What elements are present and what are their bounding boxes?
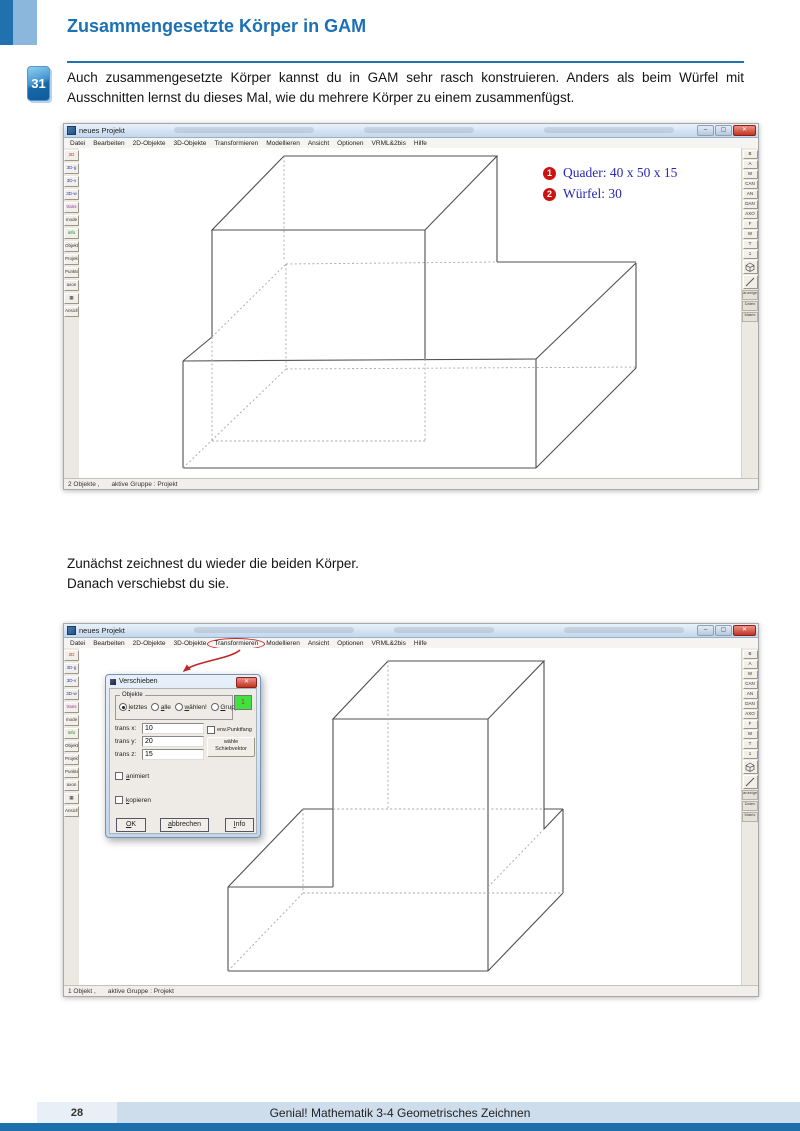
annotation-quader: 1 Quader: 40 x 50 x 15 (543, 165, 677, 181)
radio-option[interactable]: letztes (119, 703, 147, 711)
number-badge-1: 1 (543, 167, 556, 180)
toolbar-button[interactable]: trans (64, 702, 79, 713)
annotation-text: Quader: 40 x 50 x 15 (563, 165, 677, 181)
maximize-button[interactable]: ▢ (715, 125, 732, 136)
toolbar-button[interactable]: Objekt (64, 241, 79, 252)
right-toolbar-chips: anzeigenDatenMatrix (742, 290, 758, 322)
menu-item[interactable]: VRML&2bis (368, 640, 410, 647)
footer-dark-strip (0, 1123, 800, 1131)
schiebvektor-button[interactable]: wähle Schiebvektor (207, 737, 255, 757)
trans-z-label: trans z: (115, 751, 139, 758)
trans-y-label: trans y: (115, 738, 139, 745)
toolbar-chip[interactable]: Daten (742, 801, 758, 811)
trans-x-label: trans x: (115, 725, 139, 732)
window-title: neues Projekt (79, 126, 125, 135)
object-radio-group: letztes alle wählen! Gruppe (119, 703, 242, 711)
titlebar-artifact (194, 627, 354, 633)
toolbar-button[interactable]: info (64, 728, 79, 739)
radio-option[interactable]: alle (151, 703, 171, 711)
toolbar-button[interactable]: AXO (743, 710, 758, 719)
toolbar-button[interactable]: W (743, 170, 758, 179)
number-badge-2: 2 (543, 188, 556, 201)
trans-z-input[interactable] (142, 749, 204, 760)
app-icon (67, 626, 76, 635)
menu-item[interactable]: VRML&2bis (368, 140, 410, 147)
ok-button[interactable]: OK (116, 818, 146, 832)
group-count-field[interactable]: 1 (234, 695, 252, 710)
toolbar-button[interactable]: 3D-v (64, 676, 79, 687)
toolbar-chip[interactable]: Matrix (742, 312, 758, 322)
corner-decoration-dark (0, 0, 13, 45)
cube-view-icon[interactable] (743, 760, 758, 774)
book-page: Zusammengesetzte Körper in GAM 31 Auch z… (0, 0, 800, 1131)
toolbar-button[interactable]: CAN (743, 680, 758, 689)
toolbar-button[interactable]: DAN (743, 200, 758, 209)
status-group: aktive Gruppe : Projekt (108, 988, 174, 995)
menu-item[interactable]: Datei (66, 140, 89, 147)
toolbar-chip[interactable]: anzeigen (742, 290, 758, 300)
app-icon (67, 126, 76, 135)
animiert-checkbox[interactable]: animiert (115, 772, 149, 780)
menu-item[interactable]: 2D-Objekte (129, 140, 170, 147)
toolbar-button[interactable]: AN (743, 690, 758, 699)
radio-option[interactable]: wählen! (175, 703, 207, 711)
menu-item[interactable]: Transformieren (210, 640, 262, 647)
menu-item[interactable]: Modellieren (262, 140, 304, 147)
annotation-wuerfel: 2 Würfel: 30 (543, 186, 622, 202)
menu-item[interactable]: 2D-Objekte (129, 640, 170, 647)
toolbar-button[interactable]: ▦ (64, 793, 79, 804)
status-objects: 2 Objekte , (68, 481, 99, 488)
minimize-button[interactable]: – (697, 125, 714, 136)
instruction-line-2: Danach verschiebst du sie. (67, 576, 229, 591)
menu-item[interactable]: Transformieren (210, 140, 262, 147)
header-rule (67, 61, 744, 63)
menu-item[interactable]: Hilfe (410, 640, 431, 647)
checkbox-icon (115, 772, 123, 780)
menu-item[interactable]: Optionen (333, 640, 367, 647)
window-titlebar: neues Projekt – ▢ ✕ (64, 624, 758, 638)
kopieren-checkbox[interactable]: kopieren (115, 796, 151, 804)
menu-item[interactable]: Ansicht (304, 640, 333, 647)
toolbar-button[interactable]: ▦ (64, 293, 79, 304)
toolbar-button[interactable]: B (743, 150, 758, 159)
gam-window-1: neues Projekt – ▢ ✕ DateiBearbeiten2D-Ob… (63, 123, 759, 490)
radio-icon (175, 703, 183, 711)
objekte-groupbox: Objekte letztes alle wählen! (115, 695, 233, 720)
dialog-title: Verschieben (119, 678, 158, 685)
toolbar-button[interactable]: Projekt (64, 254, 79, 265)
menu-item[interactable]: Bearbeiten (89, 640, 128, 647)
toolbar-chip[interactable]: Daten (742, 301, 758, 311)
toolbar-button[interactable]: mode (64, 215, 79, 226)
menu-item[interactable]: Optionen (333, 140, 367, 147)
menu-item[interactable]: Bearbeiten (89, 140, 128, 147)
toolbar-button[interactable]: F (743, 220, 758, 229)
gam-window-2: neues Projekt – ▢ ✕ DateiBearbeiten2D-Ob… (63, 623, 759, 997)
titlebar-artifact (394, 627, 494, 633)
menu-item[interactable]: 3D-Objekte (170, 140, 211, 147)
maximize-button[interactable]: ▢ (715, 625, 732, 636)
titlebar-artifact (174, 127, 314, 133)
toolbar-button[interactable]: 3D-g (64, 663, 79, 674)
toolbar-button[interactable]: Projekt (64, 754, 79, 765)
trans-z-row: trans z: (115, 749, 204, 760)
toolbar-chip[interactable]: Matrix (742, 812, 758, 822)
toolbar-button[interactable]: Punkte (64, 767, 79, 778)
status-objects: 1 Objekt , (68, 988, 96, 995)
toolbar-chip[interactable]: anzeigen (742, 790, 758, 800)
annotation-text: Würfel: 30 (563, 186, 622, 202)
groupbox-label: Objekte (120, 692, 145, 698)
radio-icon (211, 703, 219, 711)
dialog-icon (110, 679, 116, 685)
titlebar-artifact (364, 127, 474, 133)
toolbar-button[interactable]: axon (64, 780, 79, 791)
toolbar-button[interactable]: T (743, 740, 758, 749)
page-title: Zusammengesetzte Körper in GAM (67, 16, 366, 37)
toolbar-button[interactable]: 3D-v (64, 176, 79, 187)
toolbar-button[interactable]: A (743, 160, 758, 169)
toolbar-button[interactable]: 1 (743, 250, 758, 259)
window-title: neues Projekt (79, 626, 125, 635)
toolbar-button[interactable]: F (743, 720, 758, 729)
close-button[interactable]: ✕ (733, 125, 756, 136)
menu-item[interactable]: Hilfe (410, 140, 431, 147)
toolbar-button[interactable]: 3D-w (64, 689, 79, 700)
toolbar-button[interactable]: 2D (64, 150, 79, 161)
verschieben-dialog: Verschieben ✕ Objekte letztes alle (105, 674, 261, 838)
toolbar-button[interactable]: DAN (743, 700, 758, 709)
toolbar-button[interactable]: 2D (64, 650, 79, 661)
toolbar-button[interactable]: W (743, 670, 758, 679)
menu-item[interactable]: Datei (66, 640, 89, 647)
trans-y-input[interactable] (142, 736, 204, 747)
status-group: aktive Gruppe : Projekt (111, 481, 177, 488)
left-toolbar: 2D3D-g3D-v3D-wtransmodeinfoObjektProjekt… (64, 648, 80, 986)
titlebar-artifact (544, 127, 674, 133)
toolbar-button[interactable]: trans (64, 202, 79, 213)
exercise-number-badge: 31 (27, 66, 50, 101)
footer-book-title: Genial! Mathematik 3-4 Geometrisches Zei… (0, 1102, 800, 1123)
left-toolbar: 2D3D-g3D-v3D-wtransmodeinfoObjektProjekt… (64, 148, 80, 479)
toolbar-button[interactable]: Ansicht (64, 306, 79, 317)
toolbar-button[interactable]: AXO (743, 210, 758, 219)
checkbox-icon (115, 796, 123, 804)
right-toolbar: BAWCANANDANAXOFWT1 anzeigenDatenMatrix (741, 148, 758, 479)
toolbar-button[interactable]: info (64, 228, 79, 239)
menu-item[interactable]: Modellieren (262, 640, 304, 647)
cube-view-icon[interactable] (743, 260, 758, 274)
toolbar-button[interactable]: T (743, 240, 758, 249)
status-bar: 1 Objekt , aktive Gruppe : Projekt (64, 985, 758, 996)
wireframe-composite-solid (79, 148, 742, 479)
line-tool-icon[interactable] (743, 275, 758, 289)
line-tool-icon[interactable] (743, 775, 758, 789)
corner-decoration-light (13, 0, 37, 45)
right-toolbar-buttons: BAWCANANDANAXOFWT1 (743, 650, 758, 759)
toolbar-button[interactable]: W (743, 730, 758, 739)
status-bar: 2 Objekte , aktive Gruppe : Projekt (64, 478, 758, 489)
radio-icon (151, 703, 159, 711)
right-toolbar: BAWCANANDANAXOFWT1 anzeigenDatenMatrix (741, 648, 758, 986)
right-toolbar-buttons: BAWCANANDANAXOFWT1 (743, 150, 758, 259)
menu-item[interactable]: 3D-Objekte (170, 640, 211, 647)
cancel-button[interactable]: abbrechen (160, 818, 209, 832)
toolbar-button[interactable]: 3D-w (64, 189, 79, 200)
toolbar-button[interactable]: B (743, 650, 758, 659)
radio-icon (119, 703, 127, 711)
toolbar-button[interactable]: AN (743, 190, 758, 199)
toolbar-button[interactable]: mode (64, 715, 79, 726)
minimize-button[interactable]: – (697, 625, 714, 636)
dialog-close-button[interactable]: ✕ (236, 677, 257, 688)
toolbar-button[interactable]: Objekt (64, 741, 79, 752)
dialog-body: Objekte letztes alle wählen! (109, 688, 257, 834)
instruction-line-1: Zunächst zeichnest du wieder die beiden … (67, 556, 359, 571)
checkbox-icon (207, 726, 215, 734)
toolbar-button[interactable]: A (743, 660, 758, 669)
toolbar-button[interactable]: W (743, 230, 758, 239)
right-toolbar-chips: anzeigenDatenMatrix (742, 790, 758, 822)
close-button[interactable]: ✕ (733, 625, 756, 636)
trans-y-row: trans y: (115, 736, 204, 747)
titlebar-artifact (564, 627, 684, 633)
window-titlebar: neues Projekt – ▢ ✕ (64, 124, 758, 138)
drawing-canvas[interactable]: 1 Quader: 40 x 50 x 15 2 Würfel: 30 (79, 148, 742, 479)
punktfang-checkbox[interactable]: erw.Punktfang (207, 726, 252, 734)
menu-item[interactable]: Ansicht (304, 140, 333, 147)
trans-x-row: trans x: (115, 723, 204, 734)
dialog-titlebar: Verschieben ✕ (106, 675, 260, 688)
toolbar-button[interactable]: Ansicht (64, 806, 79, 817)
toolbar-button[interactable]: axon (64, 280, 79, 291)
toolbar-button[interactable]: 1 (743, 750, 758, 759)
toolbar-button[interactable]: 3D-g (64, 163, 79, 174)
toolbar-button[interactable]: CAN (743, 180, 758, 189)
info-button[interactable]: Info (225, 818, 254, 832)
intro-paragraph: Auch zusammengesetzte Körper kannst du i… (67, 68, 744, 107)
trans-x-input[interactable] (142, 723, 204, 734)
toolbar-button[interactable]: Punkte (64, 267, 79, 278)
